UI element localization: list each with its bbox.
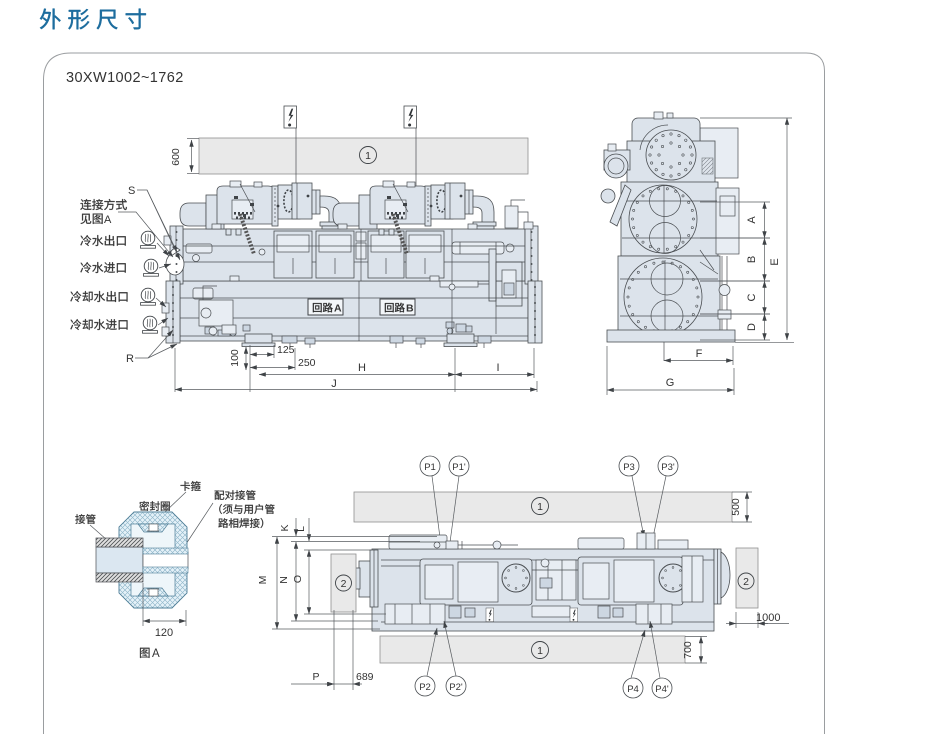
svg-text:M: M [257, 576, 269, 585]
svg-text:I: I [496, 362, 499, 374]
svg-text:P: P [312, 671, 319, 683]
svg-text:P3': P3' [661, 462, 675, 473]
svg-text:J: J [331, 378, 337, 390]
svg-text:125: 125 [277, 344, 295, 356]
svg-text:R: R [126, 353, 134, 365]
svg-text:100: 100 [229, 349, 241, 367]
svg-text:30XW1002~1762: 30XW1002~1762 [66, 70, 184, 86]
svg-text:1: 1 [537, 501, 543, 513]
svg-text:P3: P3 [623, 462, 635, 473]
svg-text:G: G [666, 377, 675, 389]
svg-text:K: K [279, 524, 291, 531]
svg-text:A: A [152, 648, 160, 660]
svg-text:2: 2 [743, 576, 749, 588]
svg-text:N: N [278, 576, 290, 584]
svg-text:C: C [746, 293, 758, 301]
svg-text:S: S [128, 185, 135, 197]
svg-text:2: 2 [341, 578, 347, 590]
svg-text:120: 120 [155, 627, 173, 639]
svg-text:P1: P1 [424, 462, 436, 473]
svg-text:P4: P4 [627, 684, 639, 695]
svg-text:689: 689 [356, 671, 374, 683]
svg-text:600: 600 [170, 148, 182, 166]
svg-text:D: D [746, 323, 758, 331]
svg-text:A: A [746, 216, 758, 224]
svg-text:250: 250 [298, 357, 316, 369]
svg-text:H: H [358, 362, 366, 374]
svg-text:L: L [295, 526, 307, 532]
svg-text:P2: P2 [419, 682, 431, 693]
svg-text:1: 1 [365, 150, 371, 162]
svg-text:1: 1 [537, 645, 543, 657]
svg-text:P4': P4' [655, 684, 669, 695]
svg-text:A: A [104, 214, 112, 226]
svg-text:P1': P1' [452, 462, 466, 473]
svg-text:B: B [406, 303, 414, 315]
svg-text:A: A [334, 303, 342, 315]
svg-text:P2': P2' [449, 682, 463, 693]
svg-text:1000: 1000 [756, 612, 780, 624]
svg-text:B: B [746, 256, 758, 263]
svg-text:O: O [292, 575, 304, 583]
svg-text:E: E [769, 258, 781, 265]
svg-text:500: 500 [730, 498, 742, 516]
svg-text:F: F [696, 348, 703, 360]
svg-text:700: 700 [682, 641, 694, 659]
